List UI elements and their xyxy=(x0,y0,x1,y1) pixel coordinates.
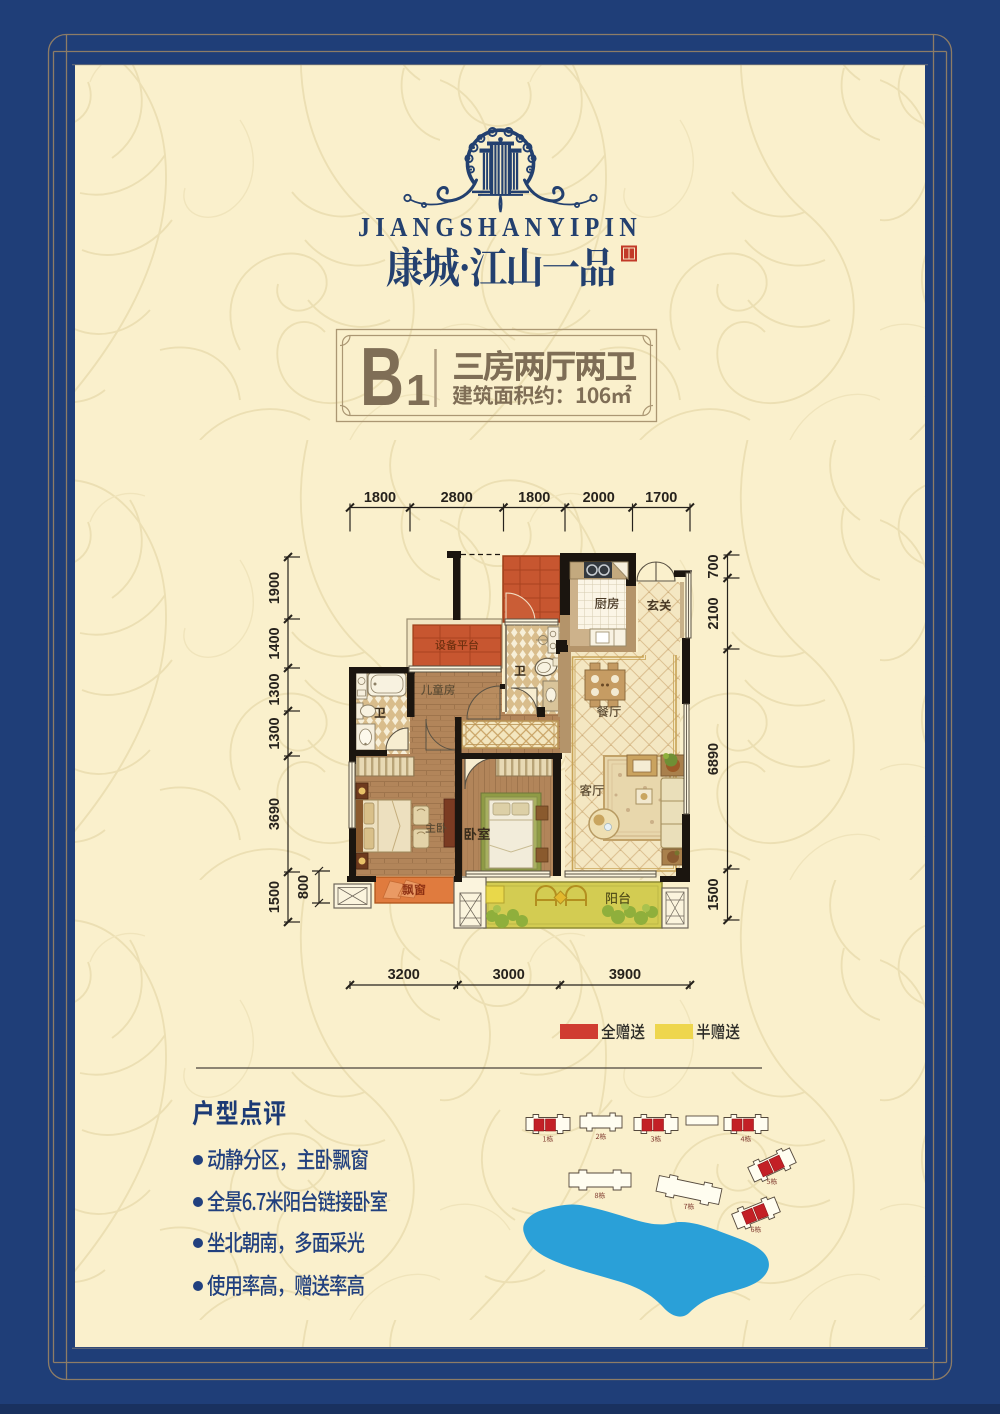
svg-text:JIANGSHANYIPIN: JIANGSHANYIPIN xyxy=(358,212,642,242)
svg-text:3900: 3900 xyxy=(609,967,641,983)
svg-text:1300: 1300 xyxy=(267,673,283,705)
svg-text:3000: 3000 xyxy=(493,967,525,983)
svg-text:1400: 1400 xyxy=(267,627,283,659)
svg-text:2000: 2000 xyxy=(583,490,615,506)
svg-text:3200: 3200 xyxy=(388,967,420,983)
svg-text:2800: 2800 xyxy=(441,490,473,506)
svg-text:700: 700 xyxy=(706,554,722,578)
svg-text:6890: 6890 xyxy=(706,743,722,775)
svg-text:1800: 1800 xyxy=(364,490,396,506)
svg-text:1900: 1900 xyxy=(267,572,283,604)
svg-text:1800: 1800 xyxy=(518,490,550,506)
svg-text:2100: 2100 xyxy=(706,597,722,629)
svg-text:3690: 3690 xyxy=(267,798,283,830)
svg-text:1500: 1500 xyxy=(706,878,722,910)
svg-text:800: 800 xyxy=(296,875,312,899)
svg-text:1500: 1500 xyxy=(267,881,283,913)
svg-text:B: B xyxy=(360,330,404,423)
svg-text:1700: 1700 xyxy=(645,490,677,506)
svg-text:1300: 1300 xyxy=(267,717,283,749)
svg-text:1: 1 xyxy=(406,366,430,415)
